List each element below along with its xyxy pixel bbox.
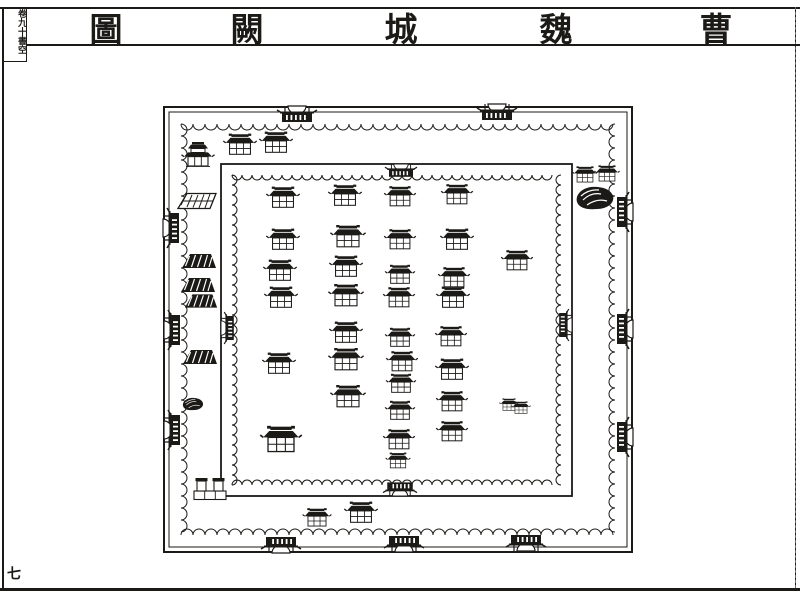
building-hall [386, 351, 418, 371]
gate-tower-outer-left [163, 208, 179, 248]
gate-tower-outer-bottom [506, 535, 546, 551]
building-hall [329, 256, 362, 277]
building-hall [386, 374, 416, 393]
building-hall [385, 401, 415, 420]
building-hall [594, 165, 619, 181]
gate-tower-outer-left [164, 410, 180, 450]
building-hall [266, 187, 299, 208]
gate-tower-outer-bottom [384, 536, 424, 552]
platform-terrace [182, 254, 216, 268]
platform-terrace [181, 278, 215, 292]
building-hall [435, 326, 467, 346]
rock-mound [577, 187, 614, 209]
gate-tower-inner-right [559, 309, 572, 341]
gate-tower-outer-right [617, 417, 633, 457]
building-hall [383, 287, 415, 307]
building-hall [436, 421, 468, 441]
building-hall [384, 229, 416, 249]
gate-tower-inner-left [221, 312, 234, 344]
rock-mound [183, 398, 203, 410]
building-hall [259, 132, 292, 153]
building-hall [435, 359, 468, 380]
building-hall [330, 385, 365, 407]
platform-terrace [185, 294, 217, 307]
building-hall [328, 284, 363, 306]
building-hall [330, 225, 365, 247]
building-hall [441, 184, 473, 204]
gate-tower-outer-top [277, 106, 317, 122]
city-structures [178, 132, 620, 526]
platform-terrace [183, 350, 217, 364]
building-hall [263, 260, 296, 281]
building-hall [303, 508, 332, 526]
building-hall [385, 265, 415, 284]
building-hall [262, 353, 295, 374]
building-hall [438, 267, 470, 287]
building-hall [223, 134, 256, 155]
building-hall [344, 502, 377, 523]
building-hall [328, 185, 361, 206]
gate-tower-outer-bottom [261, 537, 301, 553]
building-hall [436, 391, 468, 411]
building-hall [440, 229, 473, 250]
building-hall [572, 166, 597, 182]
building-hall [329, 322, 362, 343]
building-hall [266, 229, 299, 250]
map-canvas [0, 0, 800, 596]
building-gate-towers [194, 478, 226, 500]
gate-tower-outer-right [617, 309, 633, 349]
building-hall [328, 348, 363, 370]
book-page: 圖 闕 城 魏 曹 卷九十書空 七 [0, 0, 800, 596]
gate-tower-outer-left [164, 310, 180, 350]
building-hall [386, 453, 411, 468]
building-hall [501, 250, 533, 270]
building-hall [384, 186, 416, 206]
gate-tower-outer-right [617, 192, 633, 232]
building-hall [264, 287, 297, 308]
building-hall [383, 429, 415, 449]
building-hall [436, 287, 469, 308]
building-hall [260, 426, 302, 452]
building-hall [385, 328, 415, 347]
gate-tower-inner-top [385, 164, 417, 177]
gate-tower-inner-bottom [383, 482, 417, 496]
